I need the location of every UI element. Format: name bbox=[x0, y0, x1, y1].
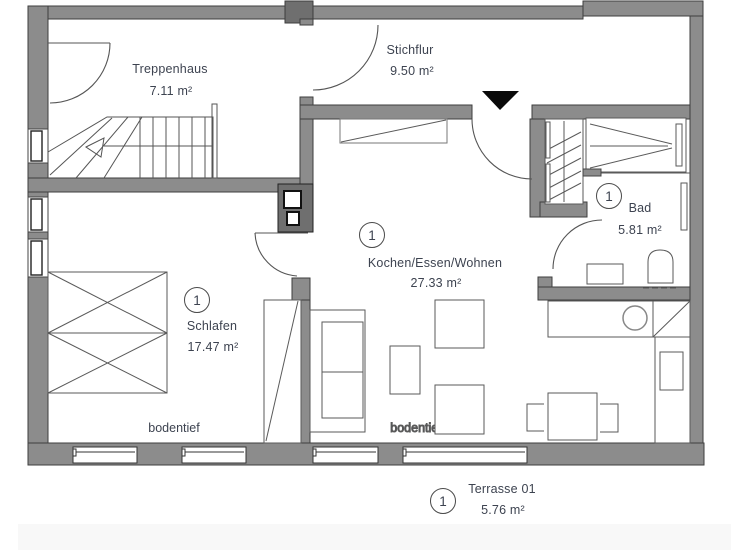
bedroom-door-stub bbox=[292, 278, 310, 300]
kitchen-sink bbox=[623, 306, 647, 330]
room-number-badge-bad: 1 bbox=[596, 183, 622, 209]
bed bbox=[48, 272, 167, 393]
armchair-top bbox=[435, 300, 484, 348]
hall-bottom-wall-right bbox=[532, 105, 690, 119]
room-number-badge-kochen: 1 bbox=[359, 222, 385, 248]
floor-plan-drawing: bodentief bodentief bbox=[0, 0, 731, 550]
coffee-table bbox=[390, 346, 420, 394]
toilet bbox=[648, 250, 673, 283]
door-hall-stairwell bbox=[313, 25, 378, 90]
stair-direction-arrow-icon bbox=[86, 138, 104, 157]
window-left-2 bbox=[28, 197, 48, 232]
room-area-schlafen: 17.47 m² bbox=[188, 340, 239, 354]
bedroom-furniture bbox=[48, 272, 301, 443]
stairwell-bottom-wall bbox=[28, 178, 313, 192]
wardrobe bbox=[264, 300, 301, 443]
bath-divider-stub bbox=[583, 169, 601, 176]
bodentief-label-living: bodentief bbox=[390, 421, 442, 435]
right-wall bbox=[690, 16, 703, 465]
top-wall-right bbox=[583, 1, 703, 16]
room-number-badge-schlafen: 1 bbox=[184, 287, 210, 313]
room-area-treppenhaus: 7.11 m² bbox=[150, 84, 193, 98]
window-bottom-1 bbox=[73, 447, 137, 463]
window-left-1 bbox=[28, 129, 48, 163]
room-label-schlafen: Schlafen bbox=[187, 319, 237, 333]
floor-plan: bodentief bodentief Treppenhaus 7.11 m² … bbox=[0, 0, 731, 550]
dining-table bbox=[548, 393, 597, 440]
door-bedroom bbox=[255, 233, 308, 276]
window-bottom-4 bbox=[403, 447, 527, 463]
room-label-treppenhaus: Treppenhaus bbox=[132, 62, 207, 76]
window-left-3 bbox=[28, 239, 48, 277]
door-stairwell-entry bbox=[48, 43, 110, 103]
dining-chair-left bbox=[527, 404, 544, 431]
doors bbox=[48, 25, 602, 276]
room-area-kochen: 27.33 m² bbox=[411, 276, 462, 290]
washbasin bbox=[587, 264, 623, 284]
window-bottom-3 bbox=[313, 447, 378, 463]
bath-radiator bbox=[681, 183, 687, 230]
room-area-terrasse: 5.76 m² bbox=[481, 503, 525, 517]
room-area-stichflur: 9.50 m² bbox=[390, 64, 434, 78]
bathtub bbox=[586, 118, 686, 172]
room-label-stichflur: Stichflur bbox=[387, 43, 434, 57]
bath-bottom-wall bbox=[538, 287, 690, 300]
sideboard bbox=[340, 119, 447, 143]
room-area-bad: 5.81 m² bbox=[618, 223, 662, 237]
shaft bbox=[278, 184, 313, 232]
terrace-ground bbox=[18, 524, 731, 550]
dining-chair-right bbox=[600, 404, 618, 432]
room-number-badge-terrasse: 1 bbox=[430, 488, 456, 514]
room-label-kochen: Kochen/Essen/Wohnen bbox=[368, 256, 502, 270]
room-label-bad: Bad bbox=[629, 201, 652, 215]
hall-bottom-wall-left bbox=[300, 105, 472, 119]
hall-divider-top bbox=[300, 19, 313, 25]
bodentief-label-bedroom: bodentief bbox=[148, 421, 200, 435]
shower bbox=[545, 119, 583, 204]
door-hall-living bbox=[472, 119, 532, 179]
window-bottom-2 bbox=[182, 447, 246, 463]
armchair-bottom bbox=[435, 385, 484, 434]
door-bath bbox=[553, 220, 602, 269]
kitchen-cooktop bbox=[660, 352, 683, 390]
kitchen-fixtures bbox=[527, 301, 690, 443]
staircase bbox=[48, 104, 217, 178]
sofa bbox=[310, 310, 365, 432]
entrance-arrow-icon bbox=[482, 91, 519, 110]
room-label-terrasse: Terrasse 01 bbox=[468, 482, 536, 496]
